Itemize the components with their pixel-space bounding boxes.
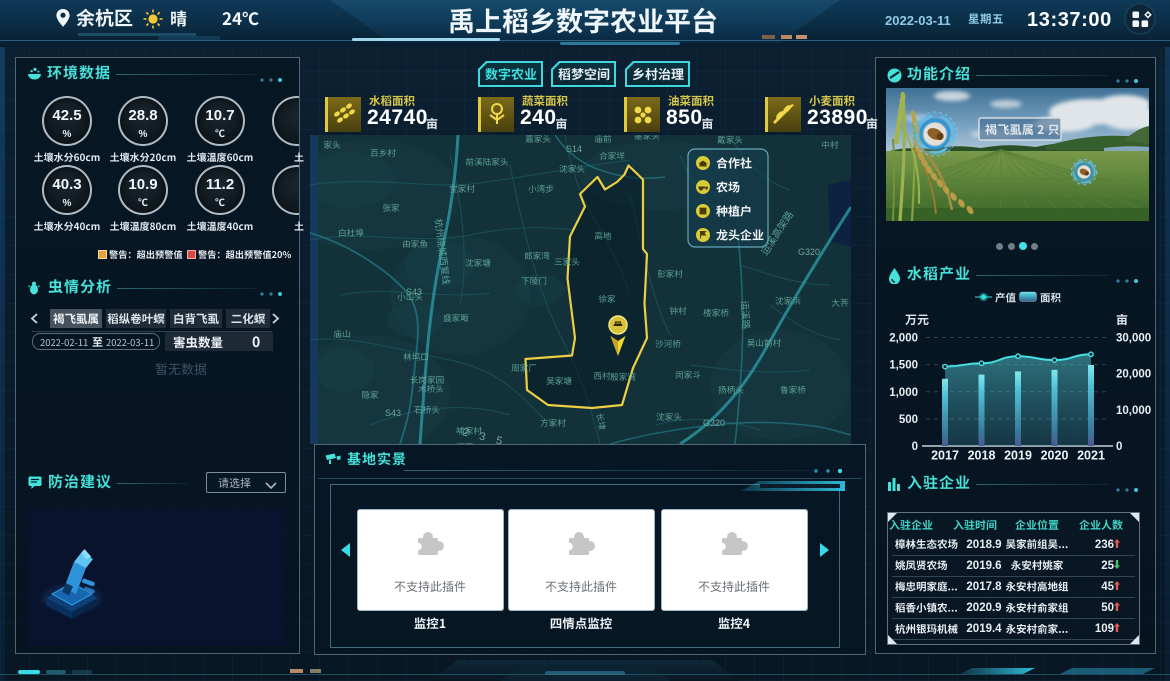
svg-text:%: %	[139, 129, 148, 140]
svg-text:%: %	[63, 198, 72, 209]
svg-text:%: %	[63, 129, 72, 140]
